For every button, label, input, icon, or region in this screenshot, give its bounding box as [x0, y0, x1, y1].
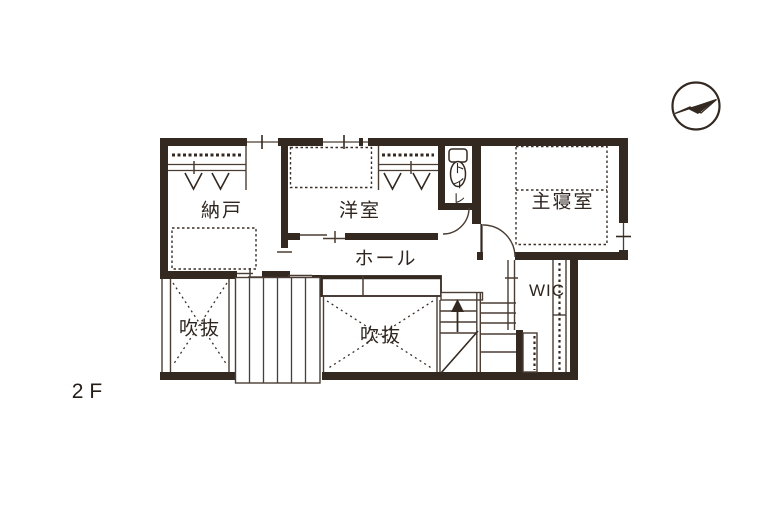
wall-toilet-west — [438, 146, 445, 210]
floor-plan-page: 納戸 洋室 ホール 主寝室 WIC 吹抜 吹抜 トイレ 2F — [0, 0, 780, 520]
stair-treads — [440, 303, 516, 352]
room-label-yoshitsu: 洋室 — [339, 196, 381, 223]
toilet-tank — [449, 149, 467, 162]
room-label-nando: 納戸 — [201, 196, 243, 223]
wall-nando-east — [281, 146, 288, 248]
hanger-v-icon — [384, 173, 401, 189]
wall-bottom-east — [322, 372, 578, 380]
wall-left — [160, 146, 168, 279]
room-label-void-right: 吹抜 — [360, 321, 402, 348]
nando-storage-outline — [172, 228, 256, 269]
room-label-void-left: 吹抜 — [179, 314, 221, 341]
stair-break-line — [441, 331, 478, 373]
floor-indicator: 2F — [72, 380, 109, 404]
wall-yoshitsu-bottom-east — [345, 233, 438, 240]
room-label-master-bedroom: 主寝室 — [531, 187, 594, 214]
nando-closet — [168, 146, 246, 190]
room-label-wic: WIC — [529, 281, 565, 301]
wall-right-upper — [619, 146, 628, 223]
wall-bottom-west — [160, 372, 238, 380]
void-railing — [322, 276, 441, 296]
hanger-v-icon — [185, 173, 202, 189]
hanger-v-icon — [212, 173, 229, 189]
hanger-v-icon — [413, 173, 430, 189]
yoshitsu-closet — [379, 146, 439, 190]
room-label-hall: ホール — [354, 244, 417, 271]
bedroom-door-arc — [483, 225, 515, 257]
up-arrow-icon — [451, 299, 464, 312]
wall-stairs-wic — [516, 330, 523, 372]
yoshitsu-bed-outline — [291, 148, 372, 188]
north-arrow-icon — [673, 83, 720, 130]
room-label-toilet: トイレ — [449, 162, 468, 207]
window-divider — [359, 138, 363, 146]
wall-top — [160, 138, 628, 146]
walkway-bridge — [236, 276, 321, 384]
wall-nando-bottom-west — [160, 271, 237, 279]
wall-wic-east — [570, 260, 578, 380]
wall-yoshitsu-bottom-west — [288, 233, 300, 240]
staircase — [440, 293, 516, 374]
wall-right-window-sill — [619, 250, 628, 260]
wall-bedroom-west — [472, 146, 481, 224]
toilet-door-arc — [443, 208, 469, 234]
wall-bedroom-bottom — [515, 252, 628, 260]
